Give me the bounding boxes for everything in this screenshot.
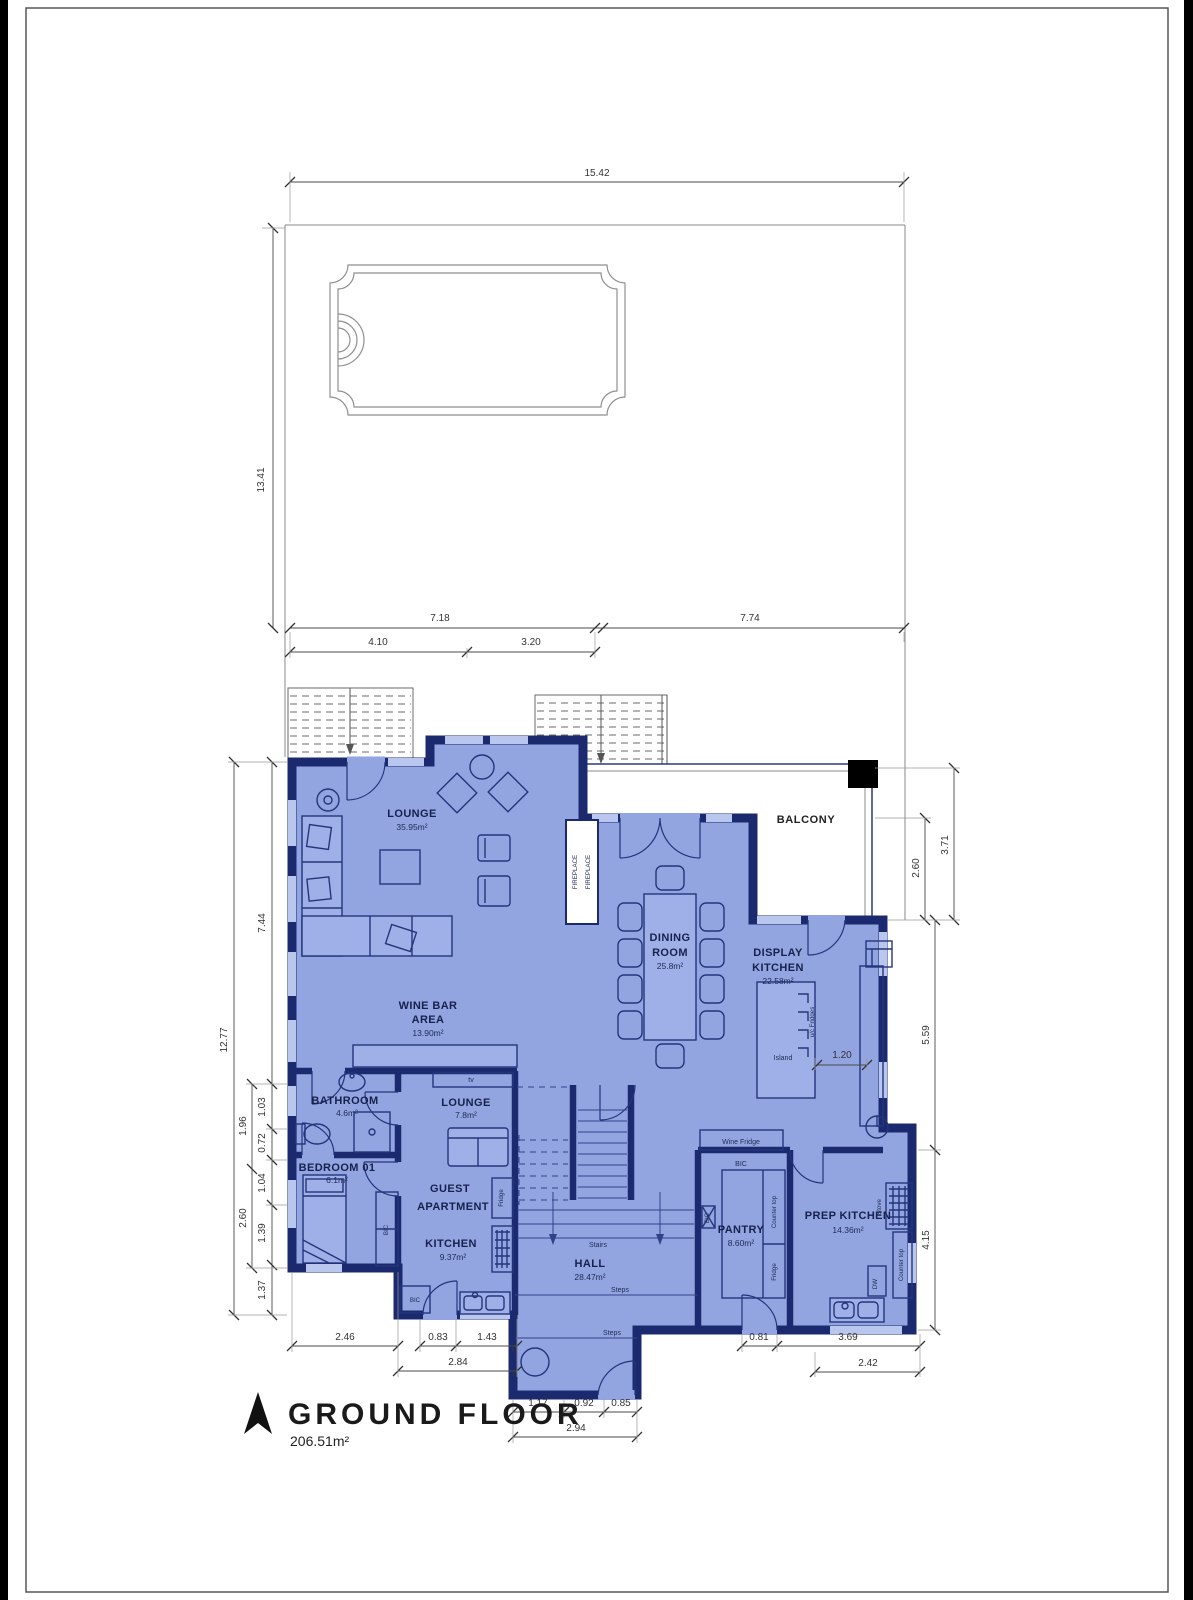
room-area-hall: 28.47m² <box>574 1272 605 1282</box>
bed <box>303 1175 346 1263</box>
room-label-display-kitchen-1: DISPLAY <box>753 947 803 959</box>
island-label: Island <box>774 1055 793 1062</box>
room-area-bathroom: 4.6m² <box>336 1108 358 1118</box>
steps-label: Steps <box>603 1330 621 1337</box>
external-stair-left <box>288 688 413 758</box>
room-area-guest-kitchen: 9.37m² <box>440 1252 467 1262</box>
room-area-guest-lounge: 7.8m² <box>455 1110 477 1120</box>
dim-left-1: 1.03 <box>257 1097 268 1117</box>
room-label-guest-apartment-1: GUEST <box>430 1183 470 1195</box>
dim-bottom-left-0: 2.46 <box>335 1332 355 1343</box>
dim-upper2-1: 3.20 <box>521 637 541 648</box>
fridge-label: Fridge <box>771 1263 778 1281</box>
stove-label: Stove <box>876 1199 883 1215</box>
dim-left-overall: 12.77 <box>219 1027 230 1052</box>
page-title-area: 206.51m² <box>290 1433 349 1449</box>
dim-left-2: 0.72 <box>257 1133 268 1153</box>
wine-bar-counter <box>353 1045 517 1067</box>
stairs-label: Stairs <box>589 1242 607 1249</box>
dim-right-1: 2.60 <box>911 858 922 878</box>
counter-top-label: Counter top <box>771 1195 778 1228</box>
swimming-pool <box>330 265 625 415</box>
room-label-guest-kitchen: KITCHEN <box>425 1238 477 1250</box>
room-area-wine-bar: 13.90m² <box>412 1028 443 1038</box>
bic-label: BIC <box>735 1161 747 1168</box>
bic-label: BIC <box>410 1297 421 1304</box>
dim-left-3: 1.04 <box>257 1173 268 1193</box>
uc-fridges-label: u/c Fridges <box>809 1007 816 1038</box>
dim-upper-1: 7.74 <box>740 613 760 624</box>
counter-top-label: Counter top <box>898 1248 905 1281</box>
room-area-lounge: 35.95m² <box>396 822 427 832</box>
bic-label: BIC <box>383 1224 390 1235</box>
tv-label: tv <box>468 1077 474 1084</box>
dim-right-0: 3.71 <box>940 835 951 855</box>
room-label-dining-1: DINING <box>650 932 691 944</box>
kitchen-island <box>757 982 815 1098</box>
room-label-pantry: PANTRY <box>718 1224 765 1236</box>
dim-right-2: 5.59 <box>921 1025 932 1045</box>
bic-label: BIC <box>704 1212 711 1223</box>
dim-left-4: 1.39 <box>257 1223 268 1243</box>
dim-bottom-left-total: 2.84 <box>448 1357 468 1368</box>
fireplace-label: FIREPLACE <box>585 855 592 889</box>
wine-fridge-label: Wine Fridge <box>722 1139 760 1146</box>
room-label-wine-bar-2: AREA <box>412 1014 445 1026</box>
dim-bottom-right-1: 3.69 <box>838 1332 858 1343</box>
room-label-display-kitchen-2: KITCHEN <box>752 962 804 974</box>
room-label-hall: HALL <box>575 1258 606 1270</box>
room-area-dining: 25.8m² <box>657 961 684 971</box>
balcony-column <box>848 760 878 788</box>
fireplace-label: FIREPLACE <box>572 855 579 889</box>
dim-bottom-right-total: 2.42 <box>858 1358 878 1369</box>
room-label-guest-lounge: LOUNGE <box>441 1097 490 1109</box>
dw-label: DW <box>872 1279 879 1289</box>
dim-right-3: 4.15 <box>921 1230 932 1250</box>
dim-left-5: 1.37 <box>257 1280 268 1300</box>
room-label-bedroom: BEDROOM 01 <box>299 1162 376 1174</box>
stair-arrow-icon <box>346 744 354 755</box>
floor-plan-drawing: FIREPLACE FIREPLACE <box>0 0 1193 1600</box>
room-label-lounge: LOUNGE <box>387 808 436 820</box>
pool-steps <box>338 314 364 366</box>
room-label-dining-2: ROOM <box>652 947 688 959</box>
dim-left-mid-0: 1.96 <box>238 1116 249 1136</box>
dim-site-top: 15.42 <box>584 168 609 179</box>
dim-island: 1.20 <box>832 1050 852 1061</box>
dim-site-left: 13.41 <box>256 467 267 492</box>
dim-upper-0: 7.18 <box>430 613 450 624</box>
room-area-pantry: 8.60m² <box>728 1238 755 1248</box>
dim-bottom-left-2: 1.43 <box>477 1332 497 1343</box>
room-label-bathroom: BATHROOM <box>311 1095 378 1107</box>
floor-plan-page: FIREPLACE FIREPLACE <box>0 0 1193 1600</box>
dim-left-mid-1: 2.60 <box>238 1208 249 1228</box>
dim-bottom-right-0: 0.81 <box>749 1332 769 1343</box>
dim-left-0: 7.44 <box>257 913 268 933</box>
fridge-label: Fridge <box>498 1189 505 1207</box>
room-area-bedroom: 6.1m² <box>326 1175 348 1185</box>
room-area-prep-kitchen: 14.36m² <box>832 1225 863 1235</box>
room-area-display-kitchen: 22.58m² <box>762 976 793 986</box>
room-label-balcony: BALCONY <box>777 814 836 826</box>
dim-upper2-0: 4.10 <box>368 637 388 648</box>
dim-entrance-2: 0.85 <box>611 1398 631 1409</box>
title-block: GROUND FLOOR 206.51m² <box>244 1392 583 1449</box>
room-label-wine-bar-1: WINE BAR <box>399 1000 458 1012</box>
page-title: GROUND FLOOR <box>288 1398 583 1431</box>
fireplace: FIREPLACE FIREPLACE <box>566 820 598 924</box>
north-arrow-icon <box>244 1392 272 1434</box>
dim-bottom-left-1: 0.83 <box>428 1332 448 1343</box>
steps-label: Steps <box>611 1287 629 1294</box>
room-label-guest-apartment-2: APARTMENT <box>417 1201 489 1213</box>
